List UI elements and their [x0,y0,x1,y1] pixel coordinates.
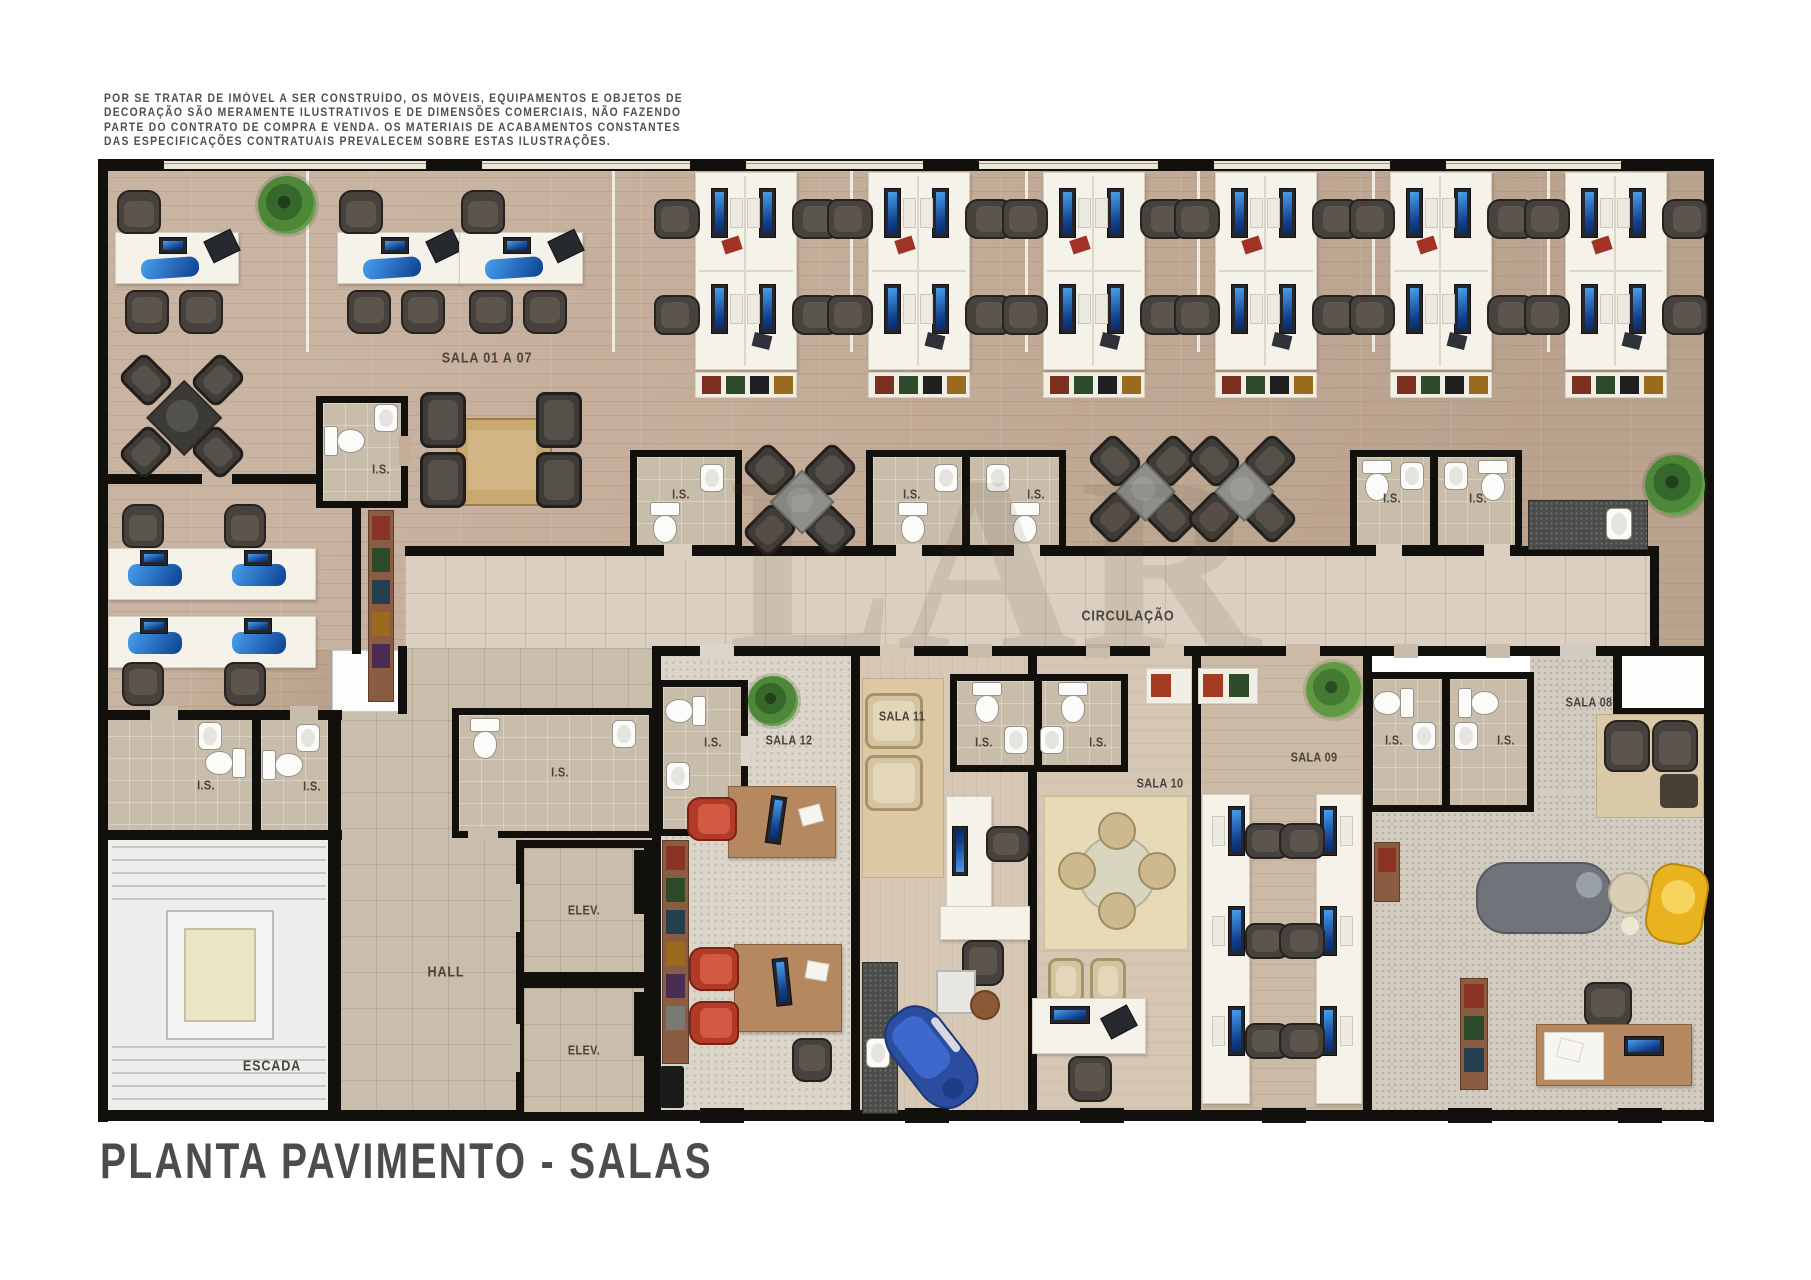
room-label-is: I.S. [1383,491,1401,506]
room-label-sala-11: SALA 11 [879,709,925,724]
room-label-sala-12: SALA 12 [766,733,813,748]
room-label-hall: HALL [428,964,465,981]
room-label-is: I.S. [197,778,215,793]
room-label-is: I.S. [1027,487,1045,502]
room-label-is: I.S. [303,779,321,794]
floor-plan-page: POR SE TRATAR DE IMÓVEL A SER CONSTRUÍDO… [0,0,1811,1280]
room-label-circulacao: CIRCULAÇÃO [1081,608,1174,625]
room-label-escada: ESCADA [243,1058,301,1075]
room-label-is: I.S. [1089,735,1107,750]
room-label-is: I.S. [551,765,569,780]
room-label-sala-01-07: SALA 01 A 07 [442,350,533,367]
room-label-is: I.S. [1469,491,1487,506]
room-label-elev-1: ELEV. [568,903,600,918]
room-label-is: I.S. [975,735,993,750]
room-label-sala-10: SALA 10 [1137,776,1184,791]
room-label-is: I.S. [704,735,722,750]
plan-title: PLANTA PAVIMENTO - SALAS [100,1132,713,1190]
room-label-is: I.S. [672,487,690,502]
room-label-sala-08: SALA 08 [1566,695,1613,710]
room-label-is: I.S. [1385,733,1403,748]
room-label-sala-09: SALA 09 [1291,750,1338,765]
room-label-is: I.S. [372,462,390,477]
room-labels-layer: SALA 01 A 07 CIRCULAÇÃO I.S. I.S. I.S. I… [0,0,1811,1280]
room-label-is: I.S. [1497,733,1515,748]
room-label-is: I.S. [903,487,921,502]
room-label-elev-2: ELEV. [568,1043,600,1058]
